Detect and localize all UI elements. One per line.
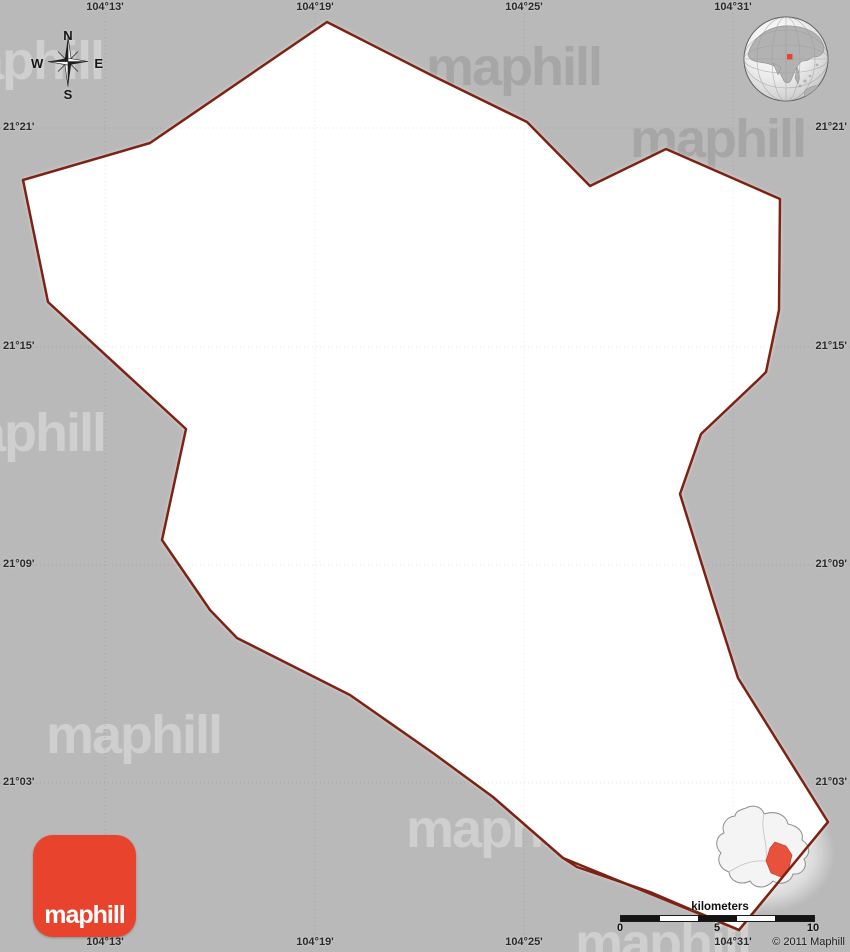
latitude-label-left: 21°21' — [3, 121, 35, 133]
longitude-label-bottom: 104°19' — [296, 936, 334, 948]
latitude-label-left: 21°15' — [3, 340, 35, 352]
scalebar-tick-label: 5 — [714, 922, 720, 934]
longitude-label-bottom: 104°31' — [714, 936, 752, 948]
scalebar-tick-label: 0 — [617, 922, 623, 934]
scalebar-segment — [737, 916, 776, 921]
maphill-logo[interactable]: maphill — [33, 835, 136, 937]
latitude-label-right: 21°21' — [816, 121, 848, 133]
latitude-label-left: 21°09' — [3, 558, 35, 570]
longitude-label-top: 104°19' — [296, 1, 334, 13]
latitude-label-right: 21°09' — [816, 558, 848, 570]
longitude-label-bottom: 104°13' — [86, 936, 124, 948]
compass-rose: N S W E — [30, 24, 106, 104]
globe-location-marker — [787, 54, 793, 60]
compass-east-label: E — [94, 56, 103, 71]
scalebar-segment — [660, 916, 699, 921]
maphill-logo-label: maphill — [33, 901, 136, 930]
longitude-label-top: 104°25' — [505, 1, 543, 13]
compass-west-label: W — [31, 56, 43, 71]
scalebar — [620, 915, 815, 922]
globe-locator-icon — [742, 15, 830, 103]
compass-north-label: N — [63, 28, 72, 43]
region-border-overlay — [0, 0, 850, 952]
compass-south-label: S — [64, 87, 73, 102]
latitude-label-right: 21°15' — [816, 340, 848, 352]
scalebar-segment — [698, 916, 737, 921]
scalebar-title: kilometers — [691, 901, 749, 913]
latitude-label-left: 21°03' — [3, 776, 35, 788]
latitude-label-right: 21°03' — [816, 776, 848, 788]
scalebar-segment — [621, 916, 660, 921]
scalebar-tick-label: 10 — [807, 922, 819, 934]
region-border-tip — [563, 822, 828, 930]
longitude-label-top: 104°13' — [86, 1, 124, 13]
longitude-label-top: 104°31' — [714, 1, 752, 13]
longitude-label-bottom: 104°25' — [505, 936, 543, 948]
map-canvas: maphillmaphillmaphillmaphillmaphillmaphi… — [0, 0, 850, 952]
scalebar-segment — [775, 916, 814, 921]
copyright-text: © 2011 Maphill — [772, 936, 845, 948]
